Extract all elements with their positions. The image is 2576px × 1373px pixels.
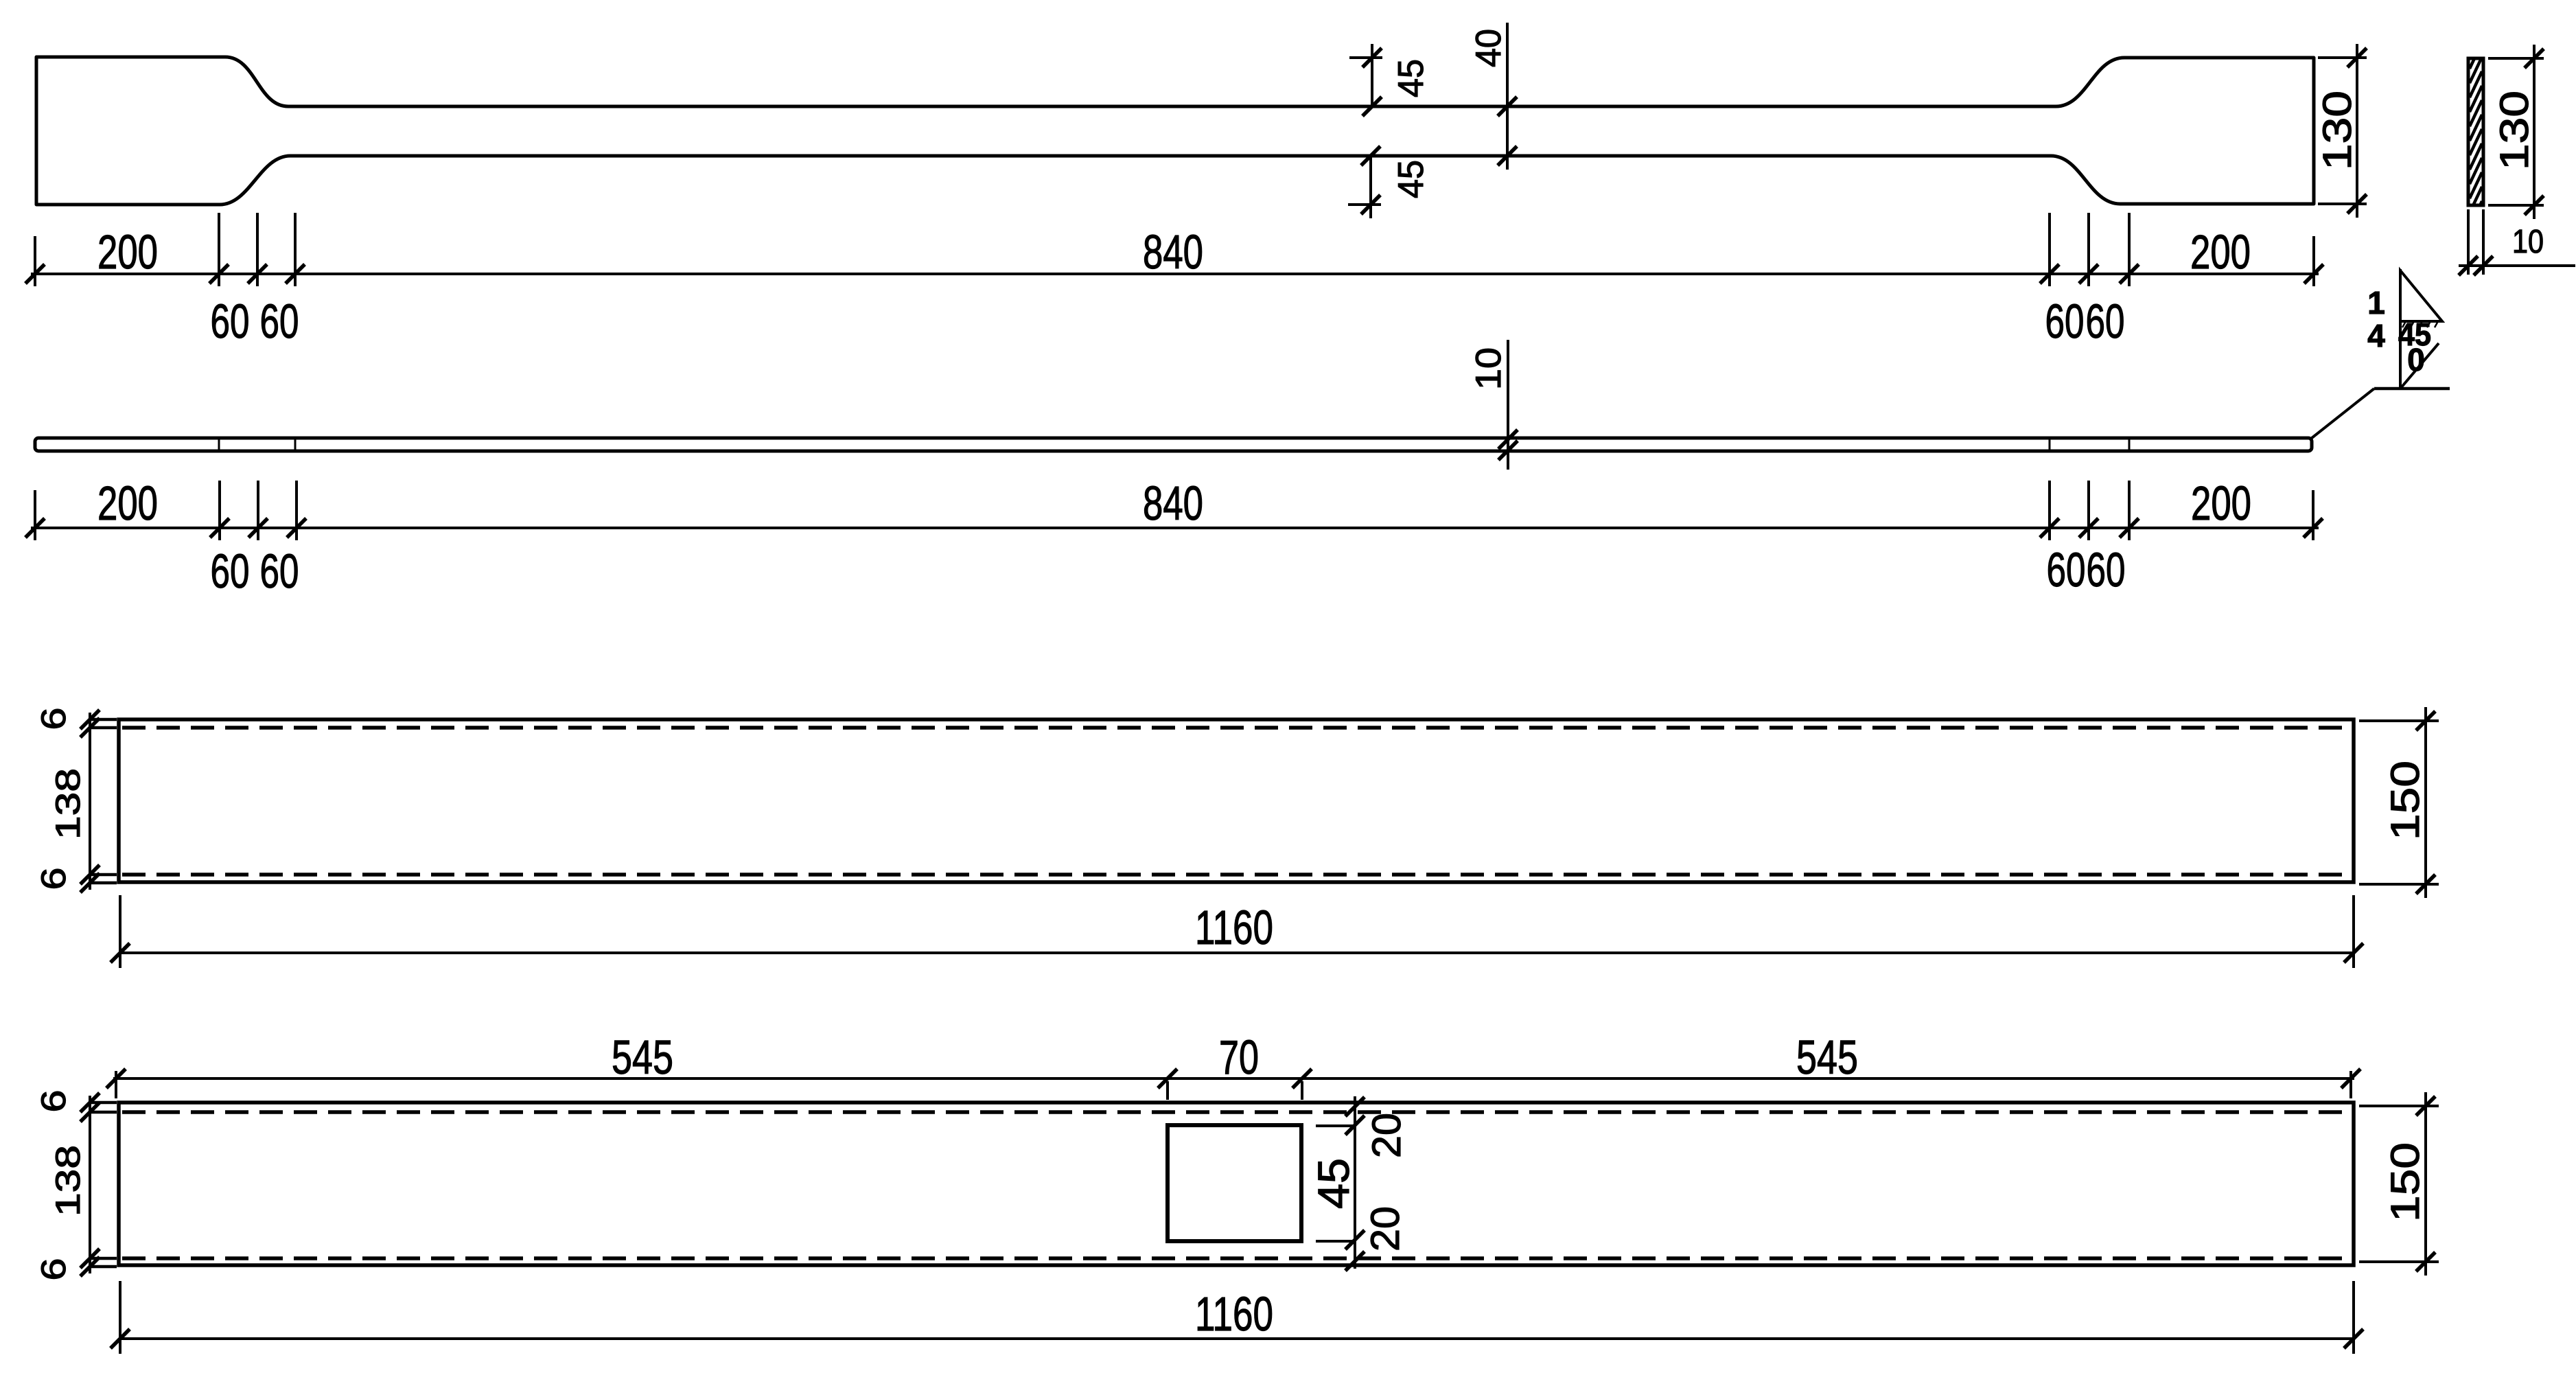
svg-text:10: 10	[2512, 224, 2544, 260]
svg-text:545: 545	[1796, 1030, 1858, 1084]
svg-text:70: 70	[1219, 1030, 1259, 1084]
svg-text:200: 200	[2191, 476, 2251, 530]
svg-text:138: 138	[49, 1145, 87, 1216]
svg-text:200: 200	[2190, 225, 2251, 279]
svg-text:6: 6	[34, 708, 73, 730]
svg-text:130: 130	[2492, 91, 2537, 170]
svg-text:840: 840	[1143, 225, 1203, 279]
svg-text:130: 130	[2315, 91, 2360, 170]
svg-text:60: 60	[2087, 543, 2126, 597]
svg-text:6: 6	[34, 868, 73, 890]
svg-text:150: 150	[2383, 1142, 2428, 1222]
svg-text:60: 60	[2086, 295, 2125, 348]
svg-text:1160: 1160	[1195, 1287, 1273, 1341]
svg-text:20: 20	[1365, 1113, 1409, 1158]
svg-text:60: 60	[211, 544, 250, 598]
svg-text:200: 200	[97, 476, 158, 530]
svg-text:45: 45	[1309, 1158, 1358, 1209]
svg-text:40: 40	[1469, 29, 1509, 67]
svg-text:138: 138	[49, 768, 87, 840]
svg-text:4: 4	[2367, 318, 2385, 354]
svg-text:10: 10	[1469, 347, 1509, 390]
svg-text:840: 840	[1143, 476, 1203, 530]
svg-text:60: 60	[260, 544, 299, 598]
svg-text:60: 60	[2045, 295, 2085, 348]
svg-text:0: 0	[2407, 342, 2425, 378]
svg-text:60: 60	[260, 295, 299, 348]
svg-text:60: 60	[211, 295, 250, 348]
svg-text:1: 1	[2367, 285, 2385, 321]
svg-text:545: 545	[612, 1030, 673, 1084]
svg-text:200: 200	[97, 225, 158, 279]
svg-text:6: 6	[34, 1258, 73, 1281]
svg-text:20: 20	[1363, 1206, 1408, 1251]
svg-text:150: 150	[2383, 761, 2428, 840]
svg-text:60: 60	[2047, 543, 2086, 597]
svg-text:1160: 1160	[1195, 901, 1273, 954]
svg-text:6: 6	[34, 1090, 73, 1113]
svg-text:45: 45	[1391, 160, 1431, 198]
svg-text:45: 45	[1391, 59, 1431, 97]
